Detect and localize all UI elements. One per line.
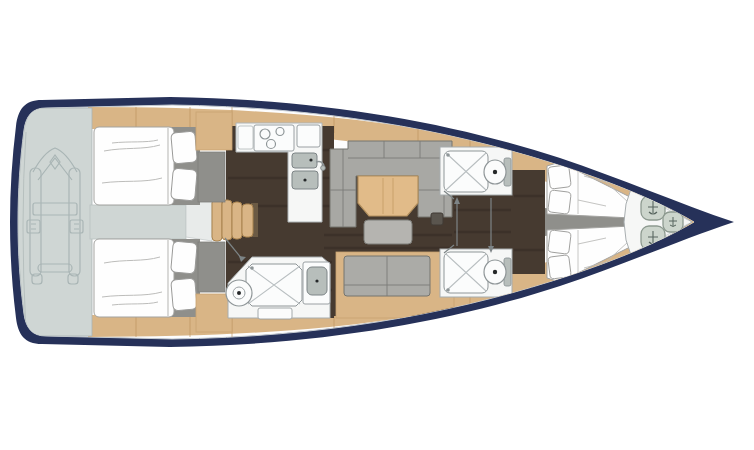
pillow bbox=[548, 190, 572, 214]
companionway-stairs bbox=[212, 199, 258, 241]
locker bbox=[198, 242, 225, 292]
aft-cabin-starboard bbox=[94, 239, 200, 317]
pillow bbox=[171, 131, 198, 164]
stern-platform bbox=[18, 108, 92, 336]
pillow bbox=[171, 168, 198, 201]
worktop bbox=[297, 125, 320, 147]
cabinet bbox=[196, 294, 232, 332]
mid-head-starboard bbox=[440, 249, 512, 297]
double-bed bbox=[94, 127, 174, 205]
floor-plan-canvas bbox=[0, 0, 754, 450]
toilet-icon bbox=[484, 158, 511, 186]
shower-icon bbox=[246, 264, 302, 306]
mid-head-port bbox=[440, 147, 512, 195]
pillow bbox=[171, 278, 198, 311]
shower-icon bbox=[444, 252, 488, 293]
toilet-icon bbox=[226, 280, 252, 306]
pillow bbox=[548, 230, 572, 254]
salon-table bbox=[358, 176, 418, 216]
pillow bbox=[548, 165, 572, 189]
shower-icon bbox=[444, 151, 488, 192]
double-bed bbox=[94, 239, 174, 317]
floor-hatch bbox=[431, 213, 443, 225]
deck-interior bbox=[18, 107, 696, 337]
stove-burner-icon bbox=[254, 125, 294, 151]
locker bbox=[198, 152, 225, 202]
yacht-floor-plan bbox=[0, 0, 754, 450]
aft-cabin-port bbox=[94, 127, 200, 205]
sink-icon bbox=[303, 262, 330, 304]
salon-stool bbox=[364, 220, 412, 244]
pillow bbox=[548, 255, 572, 279]
pillow bbox=[171, 241, 198, 274]
toilet-icon bbox=[484, 258, 511, 286]
companionway-well bbox=[186, 199, 212, 241]
cabinet bbox=[196, 112, 232, 150]
